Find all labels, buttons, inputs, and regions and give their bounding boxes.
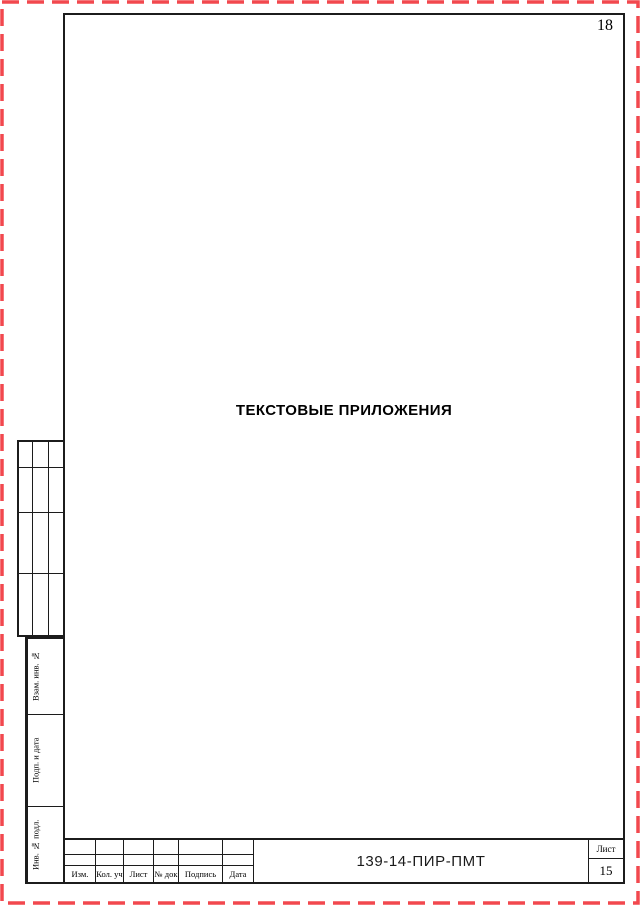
sheet-number: 15 [589,859,623,882]
revision-cell [124,855,154,866]
column-header-izm: Изм. [65,866,96,882]
revision-cell [96,840,124,855]
approval-cell [49,442,63,468]
revision-cell [154,855,179,866]
revision-cell [65,855,96,866]
side-field-vzam-inv [43,639,63,714]
approval-cell [33,513,49,574]
approval-cell [33,442,49,468]
side-field-podp-data [43,715,63,806]
approval-cell [49,574,63,635]
revision-cell [65,840,96,855]
approval-cell [19,513,33,574]
approval-cell [33,574,49,635]
document-number: 139-14-ПИР-ПМТ [254,840,588,882]
side-label-podp-data: Подп. и дата [27,715,43,806]
column-header-data: Дата [223,866,253,882]
sheet-label: Лист [589,840,623,859]
document-title: ТЕКСТОВЫЕ ПРИЛОЖЕНИЯ [63,402,625,419]
approval-table [17,440,65,637]
side-field-inv-podl [43,807,63,882]
column-header-podpis: Подпись [179,866,223,882]
revision-cell [223,840,253,855]
revision-cell [179,840,223,855]
sheet-box: Лист 15 [588,840,623,882]
revision-cell [96,855,124,866]
revision-cell [124,840,154,855]
revision-cell [179,855,223,866]
document-page: { "page": { "number": "18", "title": "ТЕ… [0,0,640,905]
revision-cell [154,840,179,855]
column-header-list: Лист [124,866,154,882]
column-header-kol-uch: Кол. уч [96,866,124,882]
side-row-inv-podl: Инв. № подл. [27,807,63,882]
drawing-frame [63,13,625,884]
column-header-no-dok: № док [154,866,179,882]
approval-cell [19,468,33,513]
approval-cell [33,468,49,513]
revision-cell [223,855,253,866]
side-panel: Взам. инв. № Подп. и дата Инв. № подл. [25,637,65,884]
side-label-inv-podl: Инв. № подл. [27,807,43,882]
approval-cell [49,468,63,513]
side-label-vzam-inv: Взам. инв. № [27,639,43,714]
approval-cell [19,574,33,635]
side-row-vzam-inv: Взам. инв. № [27,639,63,715]
approval-cell [19,442,33,468]
page-number: 18 [597,18,613,34]
revision-table: Изм. Кол. уч Лист № док Подпись Дата [65,840,254,882]
title-block: Изм. Кол. уч Лист № док Подпись Дата 139… [63,838,625,884]
approval-cell [49,513,63,574]
side-row-podp-data: Подп. и дата [27,715,63,807]
